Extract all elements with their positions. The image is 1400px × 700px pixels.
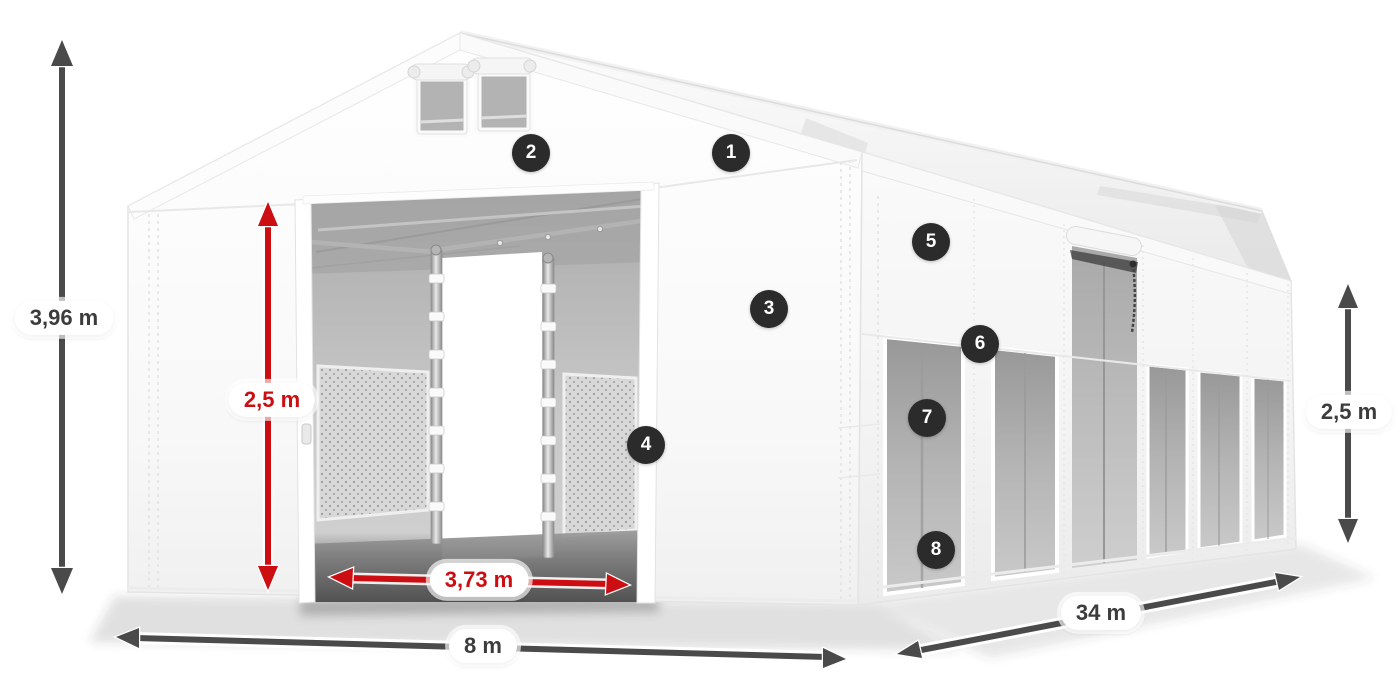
dimension-label-total-height: 3,96 m	[15, 301, 114, 335]
hotspot-3[interactable]: 3	[750, 290, 788, 328]
dimension-label-entrance-height: 2,5 m	[229, 383, 315, 417]
hotspot-8[interactable]: 8	[917, 531, 955, 569]
side-entrance-open	[1065, 225, 1143, 568]
dimension-label-gable-width: 8 m	[449, 629, 517, 663]
hotspot-2[interactable]: 2	[512, 134, 550, 172]
hotspot-4[interactable]: 4	[627, 426, 665, 464]
hotspot-6[interactable]: 6	[961, 325, 999, 363]
door-handle	[302, 424, 311, 444]
tent-dimension-diagram: 3,96 m 2,5 m 3,73 m 8 m 34 m 2,5 m 1 2 3…	[0, 0, 1400, 700]
hotspot-1[interactable]: 1	[712, 134, 750, 172]
gable-vent-window	[408, 64, 474, 134]
hotspot-5[interactable]: 5	[912, 223, 950, 261]
gable-vent-window	[468, 58, 536, 131]
dimension-label-entrance-width: 3,73 m	[430, 563, 529, 597]
hotspot-7[interactable]: 7	[908, 399, 946, 437]
dimension-label-length: 34 m	[1061, 596, 1141, 630]
tent-illustration	[0, 0, 1400, 700]
dimension-label-side-height: 2,5 m	[1306, 395, 1392, 429]
tent-entrance-interior	[295, 180, 660, 610]
